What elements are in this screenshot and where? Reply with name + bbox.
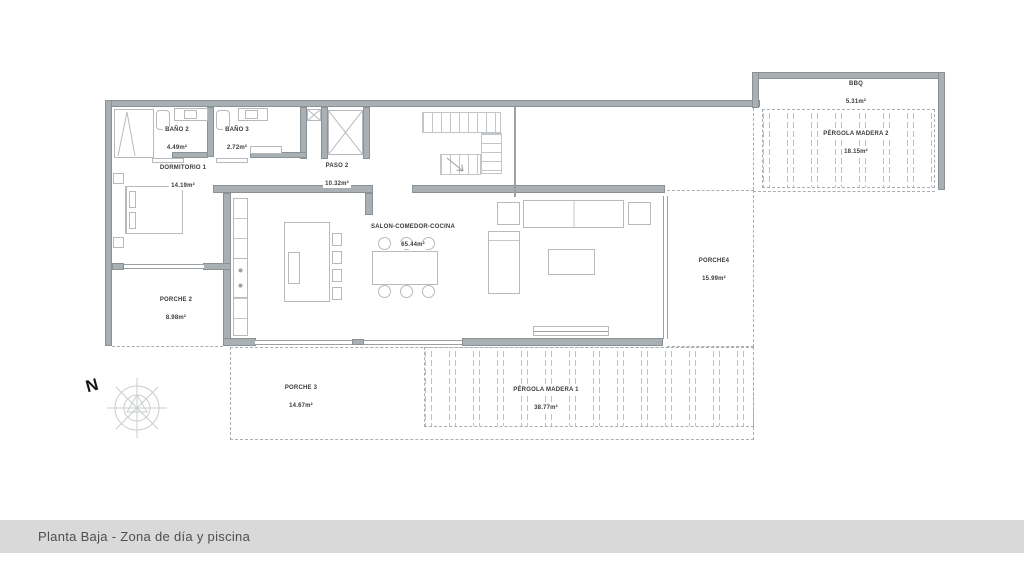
- room-name: PASO 2: [324, 163, 351, 170]
- room-name: SALON-COMEDOR-COCINA: [369, 224, 457, 231]
- shaft-box: [307, 109, 321, 121]
- stairs-turn-flight: [481, 133, 502, 174]
- north-label: N: [84, 375, 101, 397]
- island-stool: [332, 287, 342, 300]
- nightstand: [113, 237, 124, 248]
- room-label-bbq: BBQ 5.31m²: [791, 72, 921, 108]
- room-area: 5.31m²: [844, 99, 868, 106]
- dining-chair: [400, 285, 413, 298]
- wall-window-mullion: [352, 339, 364, 345]
- room-label-paso2: PASO 2 10.32m²: [272, 154, 402, 190]
- dining-table: [372, 251, 438, 285]
- wall-closet-west: [321, 107, 328, 159]
- armchair: [497, 202, 520, 225]
- pillow: [129, 212, 136, 229]
- chaise-sofa: [488, 231, 520, 294]
- room-name: BAÑO 3: [223, 127, 251, 134]
- wall-salon-south-corner: [223, 338, 256, 346]
- wall-end-return: [365, 193, 373, 215]
- compass-rose-icon: [107, 378, 167, 438]
- floor-plan: N BAÑO 2 4.49m² BAÑO 3 2.72m² DORMITORIO…: [0, 0, 1024, 561]
- wall-salon-north: [412, 185, 665, 193]
- wall-bbq-right: [938, 72, 945, 190]
- room-name: PÉRGOLA MADERA 2: [821, 131, 890, 138]
- room-name: DORMITORIO 1: [158, 165, 208, 172]
- room-name: PORCHE 2: [158, 297, 194, 304]
- north-arrow: N: [84, 375, 101, 397]
- room-area: 15.99m²: [700, 276, 728, 283]
- sofa: [523, 200, 624, 228]
- window-dormitorio-porche2: [124, 264, 204, 269]
- room-area: 18.15m²: [842, 149, 870, 156]
- plan-title: Planta Baja - Zona de día y piscina: [38, 520, 250, 553]
- room-name: PÉRGOLA MADERA 1: [511, 387, 580, 394]
- room-label-salon: SALON-COMEDOR-COCINA 65.44m²: [348, 215, 478, 251]
- dashed-line-porche4-right-upper: [753, 108, 754, 190]
- armchair: [628, 202, 651, 225]
- wall-porche2-top-east: [203, 263, 231, 270]
- island-stool: [332, 233, 342, 246]
- cooktop: [288, 252, 300, 284]
- dining-chair: [422, 285, 435, 298]
- dining-chair: [378, 285, 391, 298]
- wall-closet-east: [363, 107, 370, 159]
- window-salon-south-west: [255, 340, 352, 345]
- room-label-dormitorio1: DORMITORIO 1 14.19m²: [118, 156, 248, 192]
- room-area: 2.72m²: [225, 145, 249, 152]
- island-stool: [332, 251, 342, 264]
- title-bar: Planta Baja - Zona de día y piscina: [0, 520, 1024, 553]
- room-area: 14.19m²: [169, 183, 197, 190]
- stairs-lower-flight: [440, 154, 481, 175]
- wall-stair-enclosure: [514, 107, 516, 197]
- window-salon-south-east: [364, 340, 462, 345]
- wall-exterior-top: [105, 100, 760, 107]
- room-label-porche3: PORCHE 3 14.67m²: [236, 376, 366, 412]
- floor-plan-page: { "title_bar": { "text": "Planta Baja - …: [0, 0, 1024, 561]
- island-stool: [332, 269, 342, 282]
- room-label-bano3: BAÑO 3 2.72m²: [172, 118, 302, 154]
- room-label-porche4: PORCHE4 15.99m²: [649, 249, 779, 285]
- room-area: 10.32m²: [323, 181, 351, 188]
- room-name: BBQ: [847, 81, 865, 88]
- wall-porche2-top-west: [112, 263, 124, 270]
- room-name: PORCHE 3: [283, 385, 319, 392]
- wall-bbq-left-stub: [752, 72, 759, 108]
- room-area: 65.44m²: [399, 242, 427, 249]
- room-area: 14.67m²: [287, 403, 315, 410]
- room-label-pergola-madera1: PÉRGOLA MADERA 1 38.77m²: [481, 378, 611, 414]
- dashed-line-bbq-bottom: [753, 191, 935, 192]
- room-name: PORCHE4: [697, 258, 731, 265]
- closet-box: [328, 110, 363, 155]
- stairs-upper-flight: [422, 112, 501, 133]
- room-label-pergola-madera2: PÉRGOLA MADERA 2 18.15m²: [791, 122, 921, 158]
- dashed-line-porche2-bottom: [112, 346, 223, 347]
- pillow: [129, 191, 136, 208]
- room-area: 8.98m²: [164, 315, 188, 322]
- room-area: 38.77m²: [532, 405, 560, 412]
- tv-console: [533, 326, 609, 336]
- room-label-porche2: PORCHE 2 8.98m²: [111, 288, 241, 324]
- wall-salon-south: [462, 338, 663, 346]
- coffee-table: [548, 249, 595, 275]
